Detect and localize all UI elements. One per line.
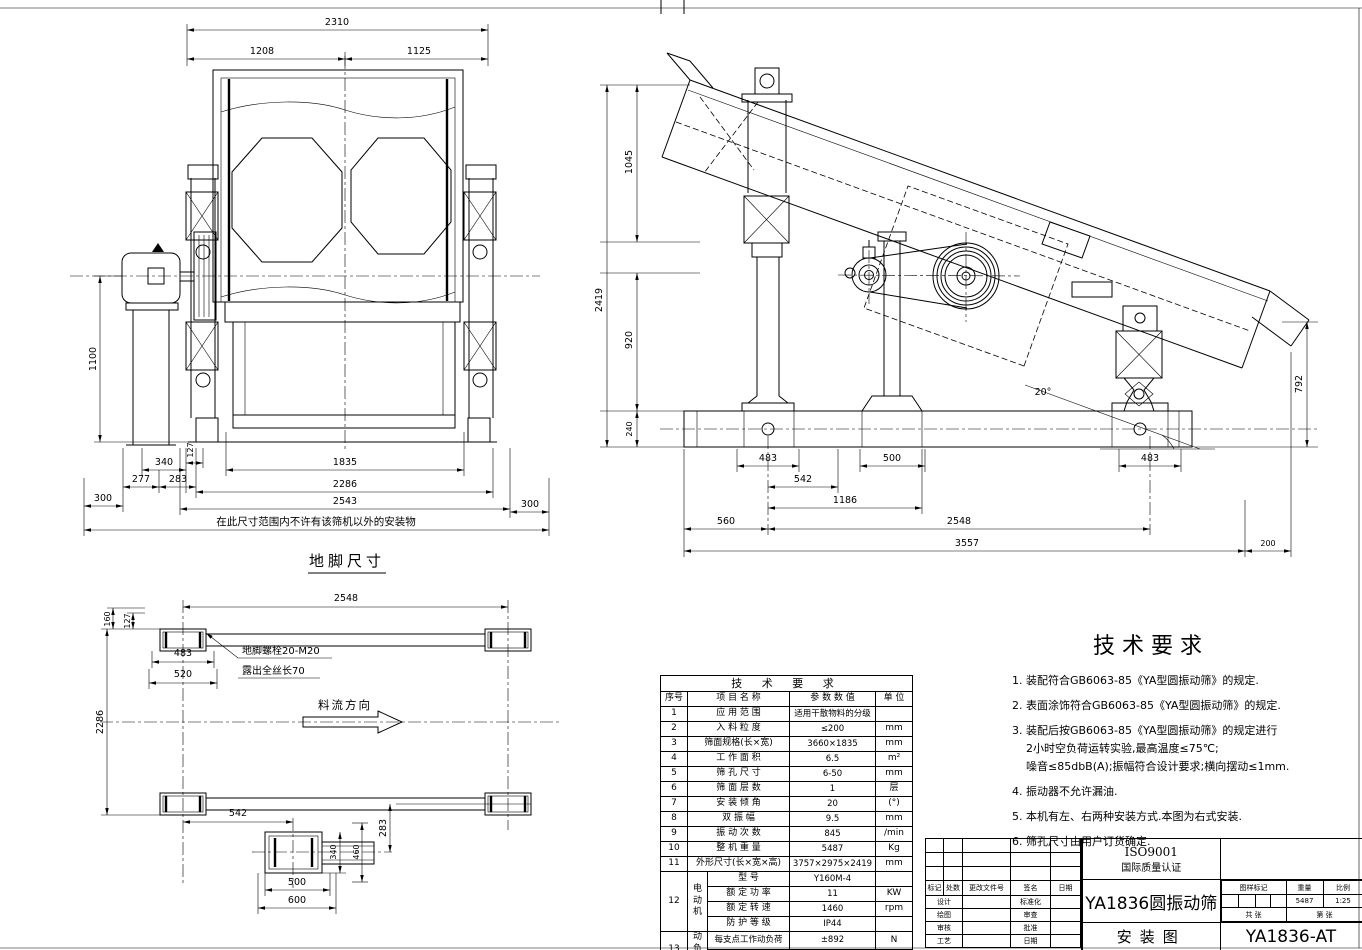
cell-name: 筛 面 层 数 <box>688 782 790 797</box>
sign-label: 批准 <box>1011 921 1051 934</box>
side-left-support <box>742 196 794 435</box>
parameters-table: 技 术 要 求 序号 项 目 名 称 参 数 数 值 单 位 1应 用 范 围适… <box>660 675 913 950</box>
sheet-number: 第 张 <box>1286 908 1362 922</box>
dim-label: 2548 <box>334 593 358 604</box>
cell-name: 整 机 重 量 <box>688 842 790 857</box>
empty-cell <box>944 867 963 881</box>
rev-header: 标记 <box>926 881 944 895</box>
empty-cell <box>1255 895 1270 908</box>
dim-label: 542 <box>229 808 247 819</box>
dim-label: 1208 <box>250 46 274 57</box>
dim-label: 483 <box>174 648 192 659</box>
cell-no: 3 <box>661 737 688 752</box>
dim-label: 1835 <box>333 457 357 468</box>
cell-name: 额 定 功 率 <box>708 887 790 902</box>
drawing-number: YA1836-AT <box>1220 923 1362 950</box>
flow-label: 料流方向 <box>318 698 372 712</box>
dim-label: 2419 <box>594 288 605 312</box>
cell-value: IP44 <box>790 917 876 932</box>
dim-label: 2286 <box>333 479 357 490</box>
tech-requirement-item: 5. 本机有左、右两种安装方式.本图为右式安装. <box>1012 808 1360 826</box>
col-header-no: 序号 <box>661 692 688 707</box>
cell-value: 5487 <box>790 842 876 857</box>
table-row <box>926 839 1081 853</box>
sign-label: 工艺 <box>926 934 963 947</box>
table-row: 共 张 第 张 <box>1221 908 1362 922</box>
cert-text-line: 国际质量认证 <box>1083 859 1220 874</box>
cell-unit: rpm <box>876 902 913 917</box>
cell-value: ≤200 <box>790 722 876 737</box>
empty-cell <box>963 921 1011 934</box>
cell-unit: mm <box>876 857 913 872</box>
empty-cell <box>963 867 1011 881</box>
tech-requirement-item: 4. 振动器不允许漏油. <box>1012 783 1360 801</box>
table-row: 9振 动 次 数845/min <box>661 827 913 842</box>
revision-sign-block: 标记 处数 更改文件号 签名 日期 设计标准化 绘图审查 审核批准 工艺日期 <box>925 838 1081 948</box>
dim-label: 600 <box>288 895 306 906</box>
title-block: 标记 处数 更改文件号 签名 日期 设计标准化 绘图审查 审核批准 工艺日期 I… <box>925 838 1360 948</box>
empty-cell <box>1011 853 1051 867</box>
cell-unit: (°) <box>876 797 913 812</box>
col-header-unit: 单 位 <box>876 692 913 707</box>
dim-label: 283 <box>169 474 187 485</box>
feed-tower <box>742 68 792 193</box>
cell-unit: mm <box>876 737 913 752</box>
certification-cell: ISO9001 国际质量认证 <box>1082 839 1220 880</box>
empty-cell <box>944 839 963 853</box>
table-row: 安装图 YA1836-AT <box>1082 923 1362 950</box>
sheets-total: 共 张 <box>1221 908 1286 922</box>
dim-label: 483 <box>1141 453 1159 464</box>
cell-value: 3757×2975×2419 <box>790 857 876 872</box>
cell-unit: m² <box>876 752 913 767</box>
empty-cell <box>963 853 1011 867</box>
empty-cell <box>1051 839 1081 853</box>
table-row: 工艺日期 <box>926 934 1081 947</box>
col-header-value: 参 数 数 值 <box>790 692 876 707</box>
table-row: 设计标准化 <box>926 895 1081 908</box>
dim-label: 283 <box>378 819 389 837</box>
cell-value: 6.5 <box>790 752 876 767</box>
cell-no: 8 <box>661 812 688 827</box>
table-row: 10整 机 重 量5487Kg <box>661 842 913 857</box>
col-header-name: 项 目 名 称 <box>688 692 790 707</box>
parameters-table-wrap: 技 术 要 求 序号 项 目 名 称 参 数 数 值 单 位 1应 用 范 围适… <box>660 675 913 950</box>
table-row <box>926 853 1081 867</box>
cell-no: 2 <box>661 722 688 737</box>
cell-no: 13 <box>661 932 688 950</box>
empty-cell <box>1051 908 1081 921</box>
dim-label: 2543 <box>333 496 357 507</box>
cell-value: 9.5 <box>790 812 876 827</box>
weight-label: 重量 <box>1286 881 1323 895</box>
dim-label: 500 <box>883 453 901 464</box>
empty-cell <box>1051 867 1081 881</box>
sign-label: 设计 <box>926 895 963 908</box>
dim-label: 277 <box>132 474 150 485</box>
dim-label: 520 <box>174 669 192 680</box>
belt-drive <box>838 186 1068 366</box>
dim-label: 3557 <box>955 538 979 549</box>
table-row: 4工 作 面 积6.5m² <box>661 752 913 767</box>
tech-requirements: 技术要求 1. 装配符合GB6063-85《YA型圆振动筛》的规定. 2. 表面… <box>1012 628 1360 851</box>
tech-requirement-item: 2小时空负荷运转实验,最高温度≤75℃; <box>1012 740 1360 758</box>
cell-name: 应 用 范 围 <box>688 707 790 722</box>
tech-requirement-item: 噪音≤85dbB(A);振幅符合设计要求;横向摆动≤1mm. <box>1012 758 1360 776</box>
sign-label: 日期 <box>1011 934 1051 947</box>
table-row: 2入 料 粒 度≤200mm <box>661 722 913 737</box>
side-view: 20° 1045 920 240 2419 792 <box>594 53 1320 557</box>
cell-value: 适用干散物料的分级 <box>790 707 876 722</box>
table-row: 5筛 孔 尺 寸6-50mm <box>661 767 913 782</box>
cell-unit: N <box>876 932 913 950</box>
cell-no: 7 <box>661 797 688 812</box>
cell-unit <box>876 872 913 887</box>
dim-label: 300 <box>521 499 539 510</box>
bolt-note-line2: 露出全丝长70 <box>242 664 305 677</box>
table-row: 绘图审查 <box>926 908 1081 921</box>
empty-cell <box>1011 839 1051 853</box>
iso-cert-line: ISO9001 <box>1083 845 1220 859</box>
cell-name: 工 作 面 积 <box>688 752 790 767</box>
cell-value: 11 <box>790 887 876 902</box>
empty-cell <box>926 853 944 867</box>
cell-name: 额 定 转 速 <box>708 902 790 917</box>
cell-name: 振 动 次 数 <box>688 827 790 842</box>
weight-value: 5487 <box>1286 895 1323 908</box>
cell-no: 11 <box>661 857 688 872</box>
dim-label: 542 <box>794 474 812 485</box>
tech-requirement-item: 3. 装配后按GB6063-85《YA型圆振动筛》的规定进行 <box>1012 722 1360 740</box>
table-row: 13 动 负 荷 每支点工作动负荷 ±892 N <box>661 932 913 950</box>
table-row: ISO9001 国际质量认证 <box>1082 839 1362 880</box>
product-name: YA1836圆振动筛 <box>1082 880 1220 923</box>
material-flow-arrow: 料流方向 <box>303 698 402 733</box>
empty-cell <box>1051 853 1081 867</box>
rev-header: 签名 <box>1011 881 1051 895</box>
dim-label: 920 <box>624 331 635 349</box>
cell-unit <box>876 917 913 932</box>
front-motor <box>122 232 216 445</box>
rev-header: 处数 <box>944 881 963 895</box>
base-frame <box>660 411 1320 447</box>
dim-label: 1100 <box>88 347 99 371</box>
cell-name: 筛面规格(长×宽) <box>688 737 790 752</box>
table-row: 1应 用 范 围适用干散物料的分级 <box>661 707 913 722</box>
dim-label: 340 <box>329 844 338 859</box>
angle-label: 20° <box>1035 387 1052 398</box>
drawing-sheet: { "front_view": { "range_note": "在此尺寸范围内… <box>0 0 1362 950</box>
empty-cell <box>963 908 1011 921</box>
table-row: 8双 振 幅9.5mm <box>661 812 913 827</box>
table-row: 审核批准 <box>926 921 1081 934</box>
cell-name: 筛 孔 尺 寸 <box>688 767 790 782</box>
drive-pillar <box>862 232 922 411</box>
cell-unit: KW <box>876 887 913 902</box>
foundation-plan: 2548 160 127 2286 483 520 542 283 <box>95 593 560 914</box>
dim-label: 2548 <box>947 516 971 527</box>
table-row: 标记 处数 更改文件号 签名 日期 <box>926 881 1081 895</box>
cell-unit: 层 <box>876 782 913 797</box>
tech-requirements-title: 技术要求 <box>1072 628 1230 660</box>
dim-label: 2286 <box>95 710 106 734</box>
plan-caption: 地脚尺寸 <box>309 552 385 570</box>
anchor-bolt-note: 地脚螺栓20-M20 露出全丝长70 <box>206 633 332 678</box>
table-row: 11外形尺寸(长×宽×高)3757×2975×2419mm <box>661 857 913 872</box>
sign-label: 绘图 <box>926 908 963 921</box>
cell-no: 1 <box>661 707 688 722</box>
front-right-support <box>464 165 496 418</box>
empty-cell <box>1221 895 1238 908</box>
empty-cell <box>1051 895 1081 908</box>
tech-requirement-item: 2. 表面涂饰符合GB6063-85《YA型圆振动筛》的规定. <box>1012 697 1360 715</box>
cell-name: 安 装 倾 角 <box>688 797 790 812</box>
load-group-cell: 动 负 荷 <box>688 932 708 950</box>
empty-cell <box>963 895 1011 908</box>
clearance-note: 在此尺寸范围内不许有该筛机以外的安装物 <box>216 515 416 528</box>
cell-value: 6-50 <box>790 767 876 782</box>
rev-header: 日期 <box>1051 881 1081 895</box>
cell-unit: mm <box>876 722 913 737</box>
side-dimensions: 1045 920 240 2419 792 483 <box>594 85 1318 557</box>
empty-cell <box>926 867 944 881</box>
cell-no: 6 <box>661 782 688 797</box>
dim-label: 200 <box>1260 539 1275 548</box>
table-row: 图样标记 重量 比例 <box>1221 881 1362 895</box>
table-row: 序号 项 目 名 称 参 数 数 值 单 位 <box>661 692 913 707</box>
cell-name: 型 号 <box>708 872 790 887</box>
table-row: 5487 1:25 <box>1221 895 1362 908</box>
front-view: 2310 1208 1125 1100 340 127 <box>70 17 549 573</box>
empty-cell <box>1238 895 1255 908</box>
dim-label: 127 <box>186 442 195 457</box>
motor-group-cell: 电 动 机 <box>688 872 708 932</box>
cell-no: 10 <box>661 842 688 857</box>
cell-no: 4 <box>661 752 688 767</box>
table-row: 6筛 面 层 数1层 <box>661 782 913 797</box>
empty-cell <box>963 934 1011 947</box>
table-row: 12 电 动 机 型 号 Y160M-4 <box>661 872 913 887</box>
cell-name: 入 料 粒 度 <box>688 722 790 737</box>
incline-angle: 20° <box>1025 385 1215 449</box>
cell-value: Y160M-4 <box>790 872 876 887</box>
cell-no: 12 <box>661 872 688 932</box>
lifting-eye <box>760 74 774 88</box>
empty-cell <box>1220 839 1362 880</box>
stage-mark-label: 图样标记 <box>1221 881 1286 895</box>
dim-label: 127 <box>123 613 132 628</box>
empty-cell <box>1011 867 1051 881</box>
cell-value: 20 <box>790 797 876 812</box>
dim-label: 483 <box>759 453 777 464</box>
scale-value: 1:25 <box>1323 895 1362 908</box>
side-right-support <box>1112 306 1168 435</box>
dim-label: 300 <box>94 493 112 504</box>
cell-unit: Kg <box>876 842 913 857</box>
dim-label: 340 <box>155 457 173 468</box>
sign-label: 标准化 <box>1011 895 1051 908</box>
cell-value: 1460 <box>790 902 876 917</box>
table-row: YA1836圆振动筛 图样标记 重量 比例 5487 1:25 共 <box>1082 880 1362 923</box>
dim-label: 240 <box>625 421 634 436</box>
empty-cell <box>1270 895 1286 908</box>
screen-mesh-left <box>232 138 342 262</box>
table-row: 技 术 要 求 <box>661 676 913 692</box>
title-block-main: ISO9001 国际质量认证 YA1836圆振动筛 图样标记 重量 比例 548… <box>1081 838 1362 950</box>
empty-cell <box>1051 921 1081 934</box>
empty-cell <box>926 839 944 853</box>
empty-cell <box>944 853 963 867</box>
dim-label: 1186 <box>833 495 857 506</box>
cell-value: 1 <box>790 782 876 797</box>
sign-label: 审查 <box>1011 908 1051 921</box>
empty-cell <box>963 839 1011 853</box>
dim-label: 1125 <box>407 46 431 57</box>
dim-label: 792 <box>1294 375 1305 393</box>
cell-name: 外形尺寸(长×宽×高) <box>688 857 790 872</box>
table-title: 技 术 要 求 <box>661 676 913 692</box>
table-row: 3筛面规格(长×宽)3660×1835mm <box>661 737 913 752</box>
cell-value: ±892 <box>790 932 876 950</box>
table-row <box>926 867 1081 881</box>
dim-label: 560 <box>717 516 735 527</box>
scale-label: 比例 <box>1323 881 1362 895</box>
empty-cell <box>1051 934 1081 947</box>
screen-mesh-right <box>351 138 451 254</box>
table-row: 7安 装 倾 角20(°) <box>661 797 913 812</box>
cell-value: 845 <box>790 827 876 842</box>
dim-label: 500 <box>288 877 306 888</box>
cell-name: 双 振 幅 <box>688 812 790 827</box>
bolt-note-line1: 地脚螺栓20-M20 <box>242 644 320 657</box>
cell-unit: mm <box>876 767 913 782</box>
dim-label: 160 <box>103 611 112 626</box>
front-dimensions: 2310 1208 1125 1100 340 127 <box>84 17 549 536</box>
cell-no: 9 <box>661 827 688 842</box>
cell-name: 每支点工作动负荷 <box>708 932 790 950</box>
sign-label: 审核 <box>926 921 963 934</box>
cell-no: 5 <box>661 767 688 782</box>
cell-value: 3660×1835 <box>790 737 876 752</box>
cell-unit: mm <box>876 812 913 827</box>
dim-label: 1045 <box>624 150 635 174</box>
dim-label: 460 <box>352 844 361 859</box>
cell-unit <box>876 707 913 722</box>
cell-name: 防 护 等 级 <box>708 917 790 932</box>
tech-requirement-item: 1. 装配符合GB6063-85《YA型圆振动筛》的规定. <box>1012 672 1360 690</box>
scale-weight-grid: 图样标记 重量 比例 5487 1:25 共 张 第 张 <box>1221 880 1362 922</box>
sheet-title: 安装图 <box>1082 923 1220 950</box>
dim-label: 2310 <box>325 17 349 28</box>
cell-unit: /min <box>876 827 913 842</box>
rev-header: 更改文件号 <box>963 881 1011 895</box>
